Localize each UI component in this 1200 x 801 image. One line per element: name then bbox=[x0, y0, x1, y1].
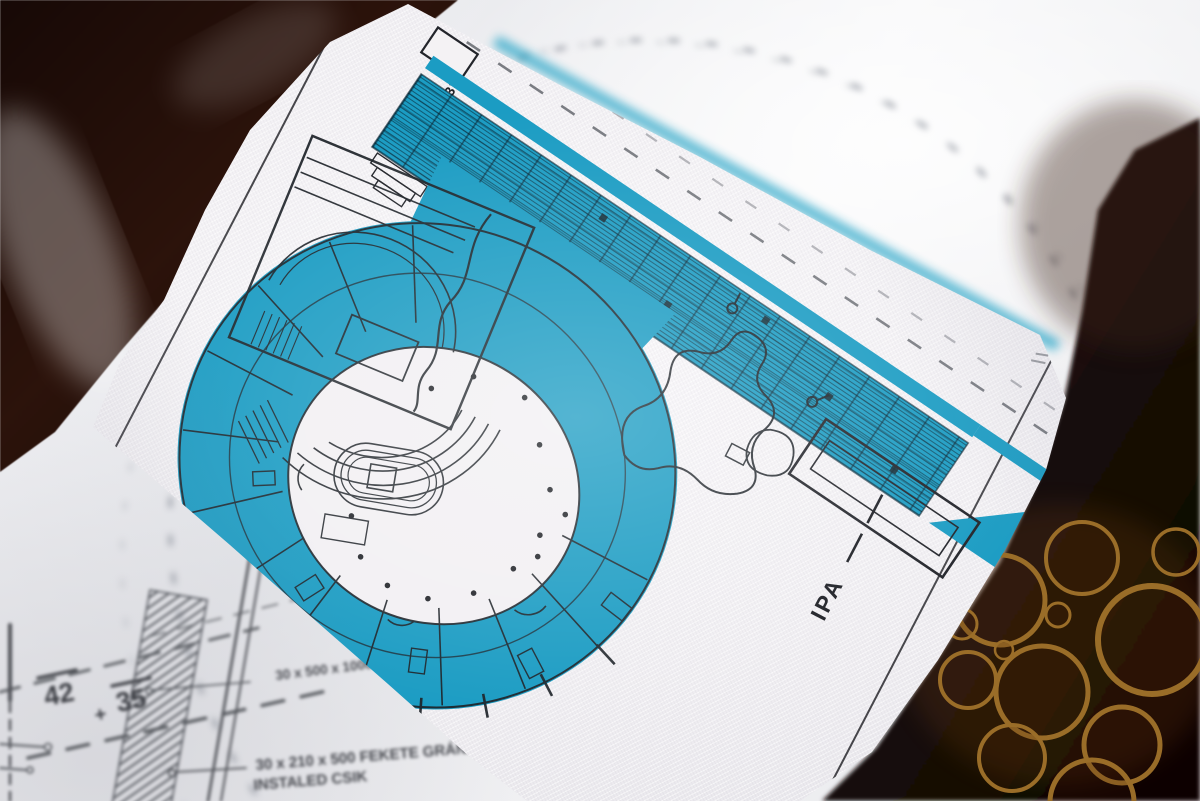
photo-scene: 42 + 35 30 x 500 x 1000 30 x 210 x 500 F… bbox=[0, 0, 1200, 801]
note-line1: 30 x 210 x 500 FEKETE GRÁNIT bbox=[255, 739, 481, 774]
dimension-plus: + bbox=[93, 703, 109, 727]
svg-text:IPA: IPA bbox=[805, 573, 848, 624]
note-upper: 30 x 500 x 1000 bbox=[275, 656, 374, 683]
beer-style-text: IPA bbox=[805, 488, 893, 624]
dimension-42: 42 bbox=[41, 677, 76, 712]
small-annotation-marks bbox=[1031, 350, 1049, 367]
dimension-35: 35 bbox=[113, 683, 148, 718]
